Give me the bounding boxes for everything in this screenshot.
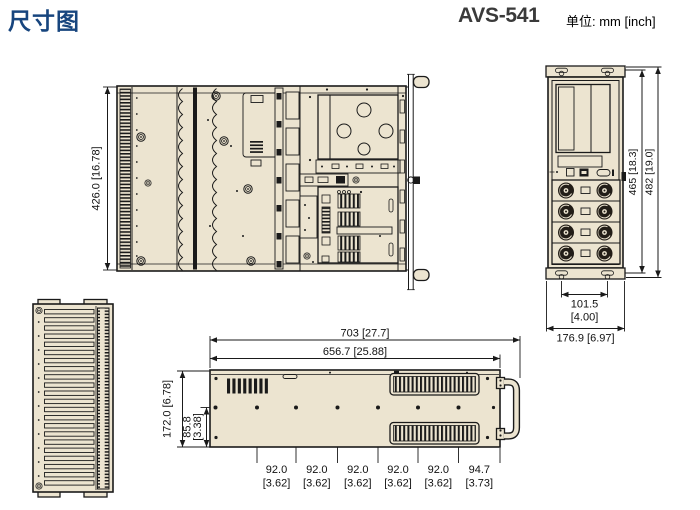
card-slot-front-strip bbox=[120, 87, 132, 270]
dimension-drawing: 426.0 [16.78] bbox=[0, 0, 700, 510]
svg-text:92.0: 92.0 bbox=[306, 464, 327, 476]
side-hole-offset-inch: [3.38] bbox=[192, 413, 204, 441]
front-panel-plane bbox=[406, 74, 429, 290]
top-view-depth-dim: 426.0 [16.78] bbox=[91, 146, 103, 210]
svg-text:92.0: 92.0 bbox=[387, 464, 408, 476]
rear-fan-array bbox=[552, 180, 620, 264]
svg-text:92.0: 92.0 bbox=[266, 464, 287, 476]
svg-text:[3.62]: [3.62] bbox=[263, 478, 291, 490]
rear-width-inner-dim: 465 [18.3] bbox=[627, 149, 639, 196]
front-view-drawing bbox=[33, 300, 113, 498]
side-length-overall-dim: 703 [27.7] bbox=[341, 328, 390, 340]
svg-text:[3.62]: [3.62] bbox=[384, 478, 412, 490]
svg-text:92.0: 92.0 bbox=[347, 464, 368, 476]
svg-text:[3.62]: [3.62] bbox=[425, 478, 453, 490]
rear-width-outer-dim: 482 [19.0] bbox=[644, 149, 656, 196]
top-view-drawing: 426.0 [16.78] bbox=[91, 74, 430, 290]
dimension-diagram-page: 尺寸图 AVS-541 单位: mm [inch] bbox=[0, 0, 700, 510]
side-right-vent-grille-bottom bbox=[390, 423, 479, 445]
rear-depth-dim: 176.9 [6.97] bbox=[556, 333, 614, 345]
svg-text:[3.62]: [3.62] bbox=[344, 478, 372, 490]
io-sub-panel bbox=[243, 93, 280, 166]
rear-foot-span-inch: [4.00] bbox=[571, 312, 599, 324]
rack-handle bbox=[414, 77, 430, 88]
side-right-vent-grille-top bbox=[390, 374, 479, 396]
svg-text:94.7: 94.7 bbox=[469, 464, 490, 476]
side-height-dim: 172.0 [6.78] bbox=[162, 380, 174, 438]
rear-foot-span-mm: 101.5 bbox=[571, 299, 599, 311]
svg-text:[3.62]: [3.62] bbox=[303, 478, 331, 490]
side-length-body-dim: 656.7 [25.88] bbox=[323, 346, 387, 358]
rack-handle bbox=[414, 270, 430, 281]
side-view-drawing: 703 [27.7] 656.7 [25.88] 172.0 [6.78] 85… bbox=[162, 328, 521, 490]
svg-text:[3.73]: [3.73] bbox=[466, 478, 494, 490]
svg-text:92.0: 92.0 bbox=[428, 464, 449, 476]
backplane-rail bbox=[275, 88, 299, 269]
hole-pitch-labels: 92.0 [3.62] 92.0 [3.62] 92.0 [3.62] 92.0… bbox=[263, 464, 493, 490]
rear-view-drawing: 465 [18.3] 482 [19.0] 101.5 [4.00] 176.9… bbox=[546, 66, 662, 345]
front-vent-grille bbox=[98, 308, 110, 489]
